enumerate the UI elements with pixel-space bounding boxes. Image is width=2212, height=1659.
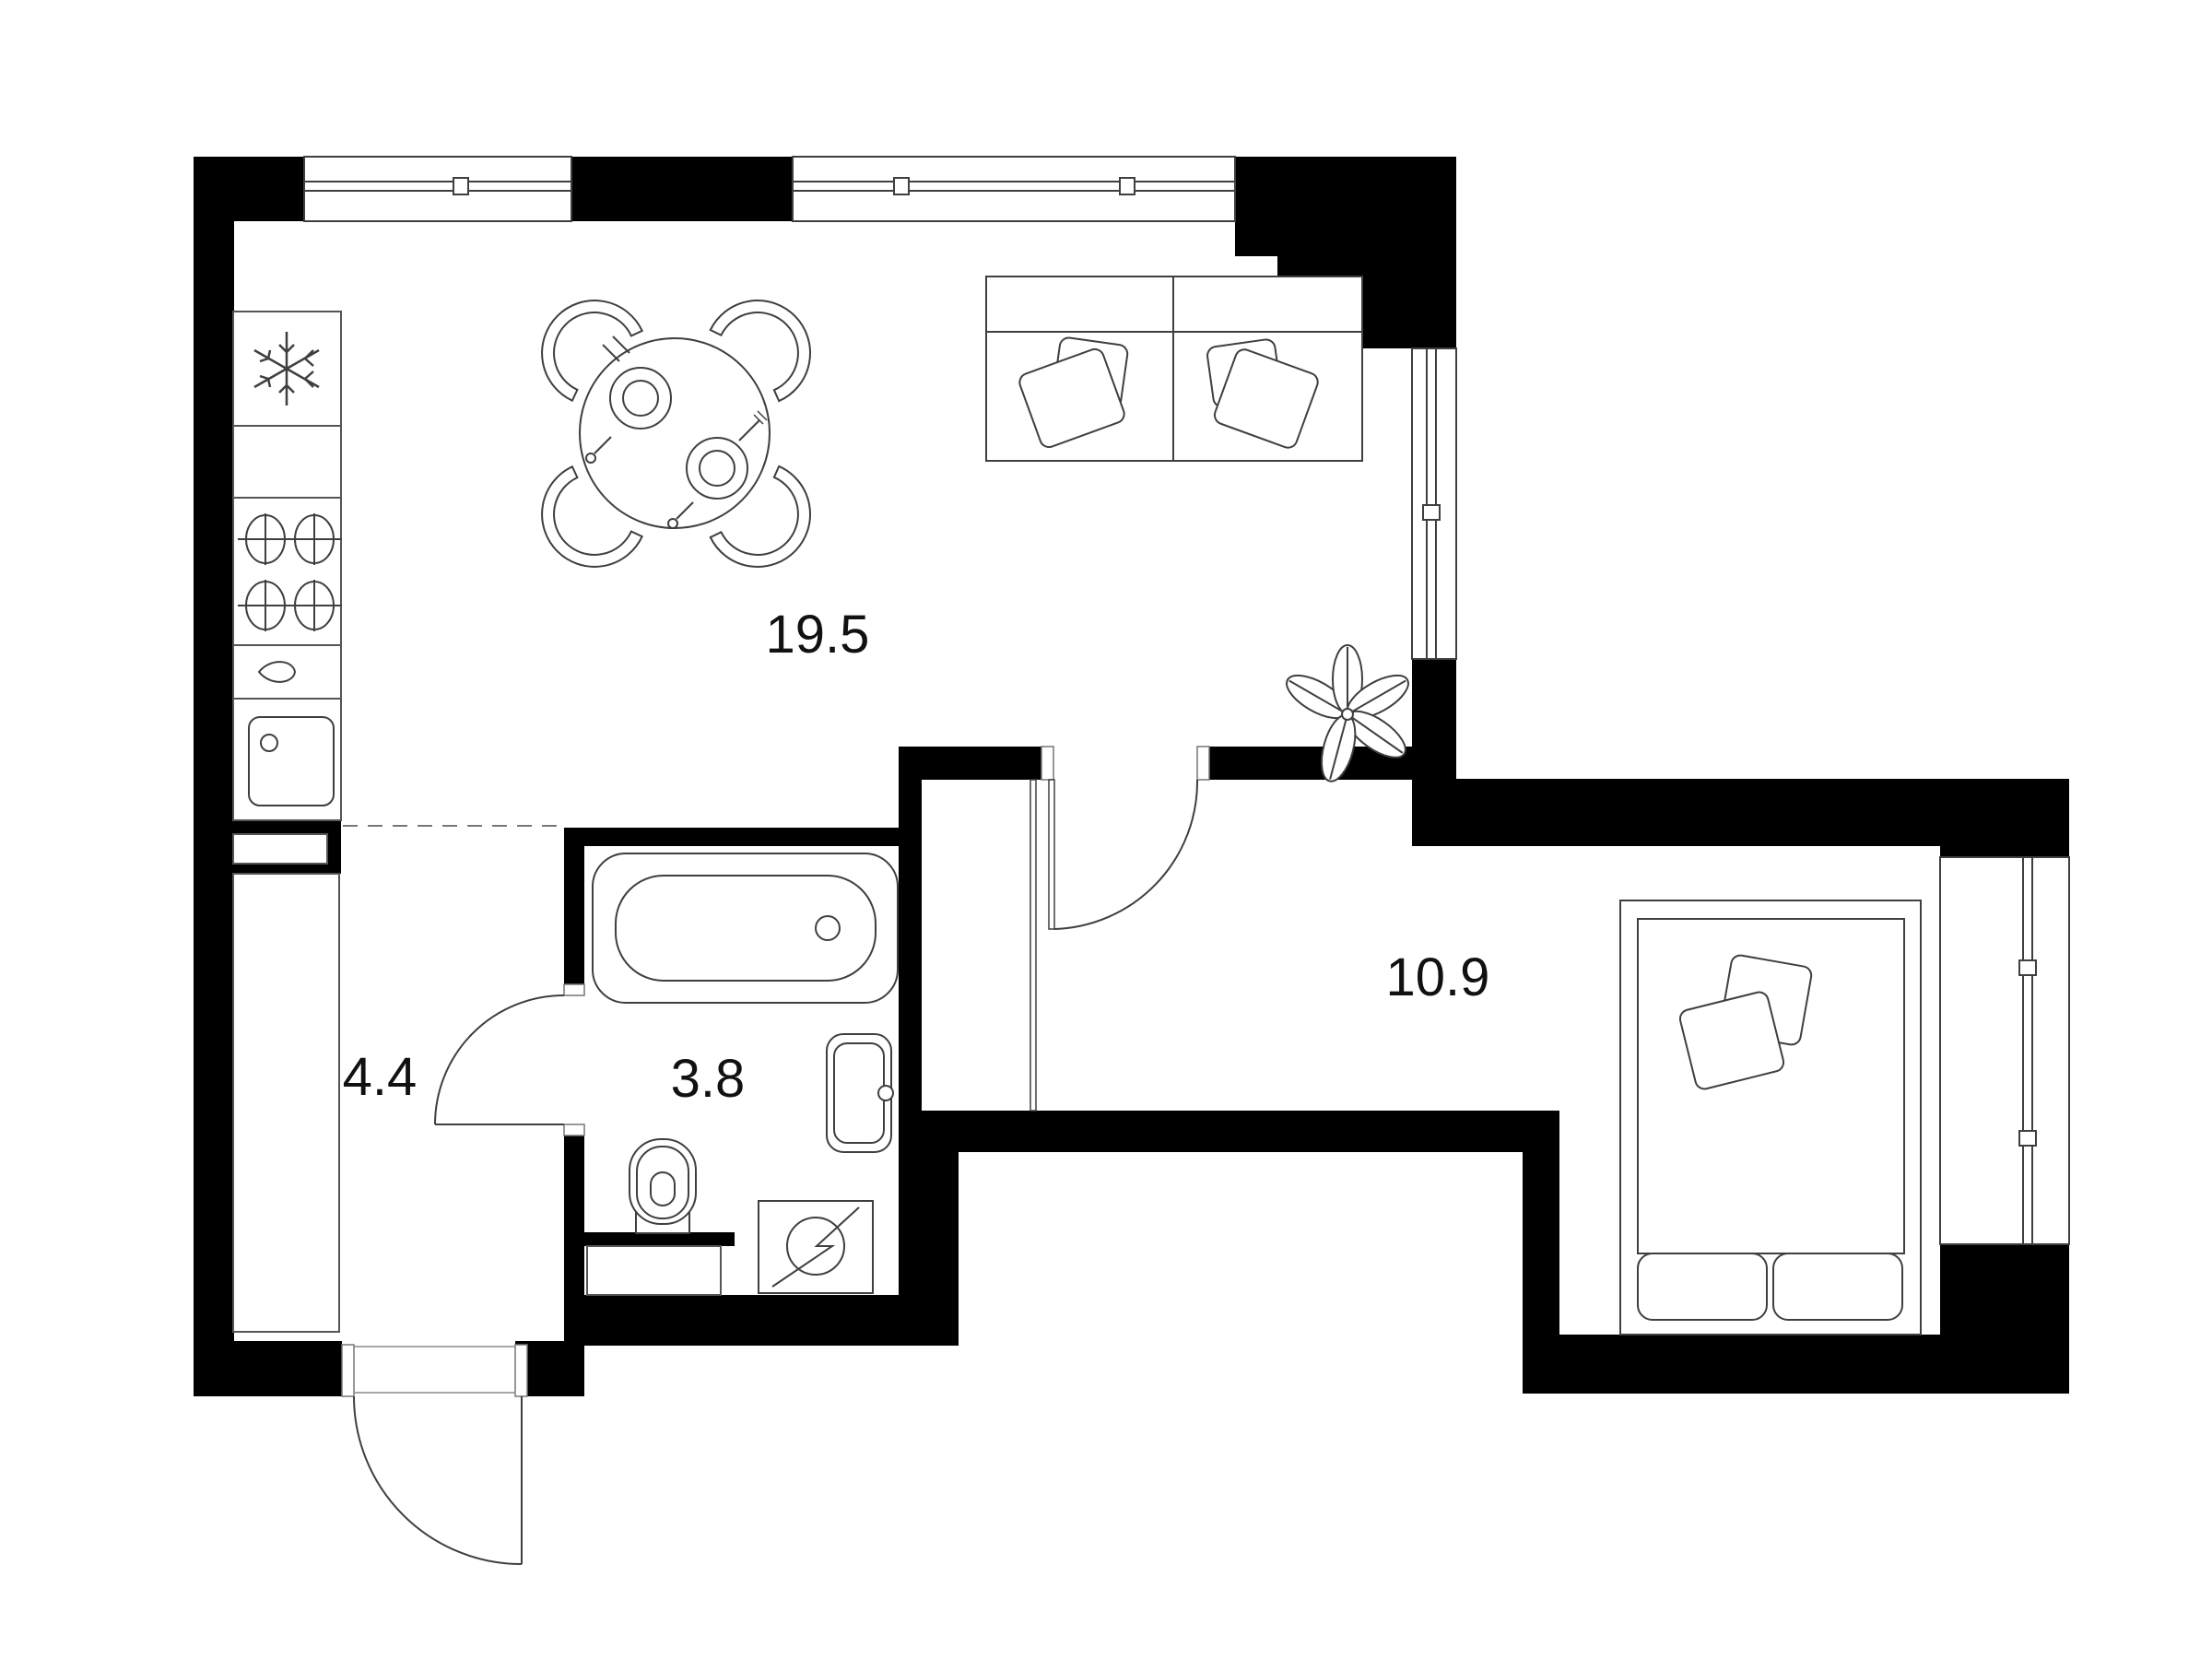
wall-bedroom-top [1456, 779, 1940, 846]
wall-right-living [1412, 659, 1456, 846]
window-bedroom-right [1940, 857, 2069, 1244]
sofa [986, 276, 1362, 461]
room-label-bedroom: 10.9 [1386, 947, 1490, 1007]
wall-top-mid [571, 157, 793, 221]
toilet [629, 1139, 696, 1233]
wall-bathroom-top [564, 828, 899, 846]
wall-corridor-band-left [899, 747, 1041, 780]
floor-plan: 19.5 4.4 3.8 10.9 [0, 0, 2212, 1659]
double-bed [1620, 900, 1921, 1335]
window-top-right [793, 157, 1235, 221]
wall-step-vertical [1523, 1152, 1559, 1335]
wall-bathroom-bottom [564, 1295, 959, 1346]
wall-bottom-left [194, 1341, 342, 1396]
room-label-bathroom: 3.8 [671, 1049, 746, 1109]
wall-bedroom-bottom [1523, 1335, 2069, 1394]
duct-box [587, 1246, 721, 1295]
window-living-right [1412, 348, 1456, 659]
wall-bathroom-left-lower [564, 1135, 584, 1295]
entrance-door [354, 1347, 522, 1564]
kitchen-niche [233, 834, 327, 864]
wall-top-left-corner [194, 157, 304, 221]
wall-toilet-duct [584, 1232, 735, 1246]
window-top-left [304, 157, 571, 221]
wardrobe [233, 874, 339, 1332]
counter-segment [233, 426, 341, 498]
wall-bathroom-left-upper [564, 846, 584, 984]
washbasin [827, 1034, 893, 1152]
dining-table-set [542, 300, 810, 567]
wall-left [194, 157, 234, 1396]
washing-machine [759, 1201, 873, 1293]
dining-table [580, 338, 770, 528]
sink-basin-icon [249, 717, 334, 806]
room-label-kitchen-living: 19.5 [766, 605, 870, 665]
room-label-hallway: 4.4 [343, 1047, 418, 1107]
bathtub [593, 853, 898, 1003]
partition-thin-wall [1030, 780, 1036, 1111]
bedroom-door [1049, 780, 1197, 929]
wall-step-band [959, 1111, 1559, 1152]
wall-bathroom-right [899, 780, 922, 1295]
wall-bedroom-tr-corner [1940, 779, 2069, 857]
wall-bedroom-br-corner [1940, 1244, 2069, 1335]
wall-top-right [1235, 157, 1456, 256]
bathroom-door [435, 995, 564, 1124]
